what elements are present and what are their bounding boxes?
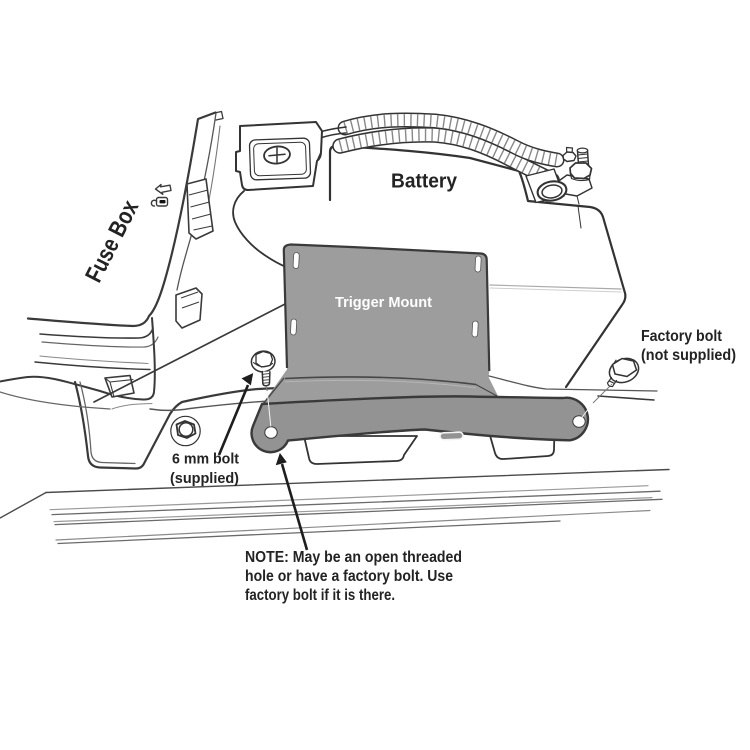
svg-text:NOTE: May be an open threaded: NOTE: May be an open threaded <box>245 549 462 566</box>
svg-text:factory bolt if it is there.: factory bolt if it is there. <box>245 587 395 604</box>
svg-text:Trigger Mount: Trigger Mount <box>335 294 432 311</box>
svg-text:Factory bolt: Factory bolt <box>641 328 723 345</box>
svg-text:6 mm bolt: 6 mm bolt <box>172 451 239 468</box>
svg-text:(supplied): (supplied) <box>170 470 239 487</box>
svg-text:(not supplied): (not supplied) <box>641 347 736 364</box>
svg-text:Battery: Battery <box>391 171 458 193</box>
svg-text:hole or have a factory bolt. U: hole or have a factory bolt. Use <box>245 568 453 585</box>
